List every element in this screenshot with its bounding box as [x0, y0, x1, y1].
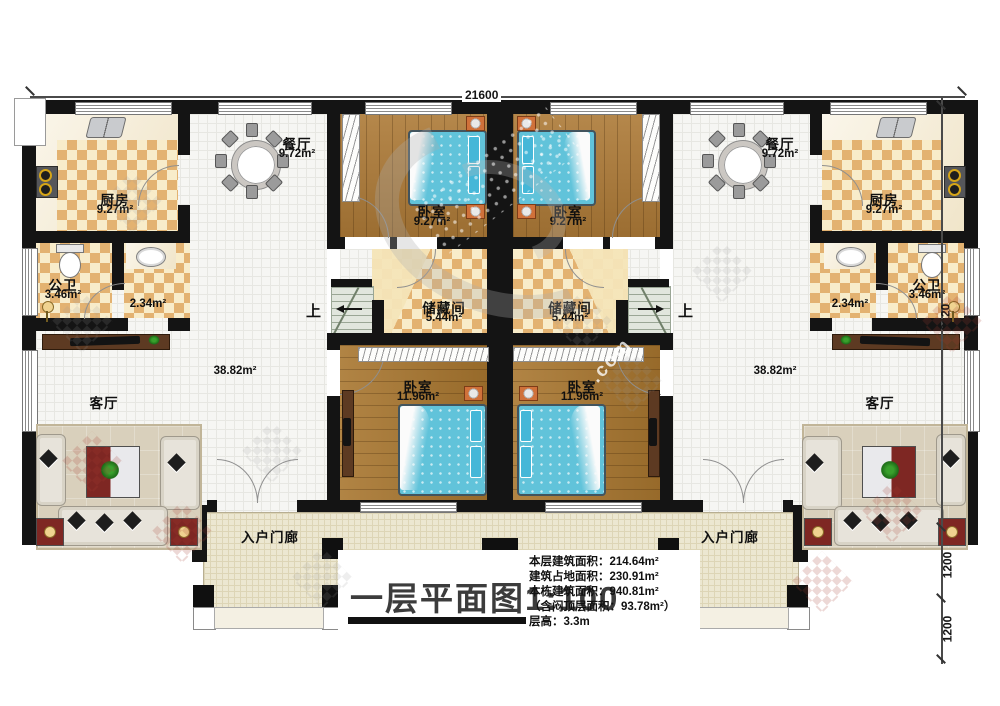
bed-pillow: [520, 410, 532, 442]
dimension-top-value: 21600: [462, 88, 501, 102]
lamp-icon: [42, 301, 54, 313]
stairs-up-label: 上: [678, 300, 693, 321]
dimension-line-right: [941, 98, 943, 664]
entry-steps: [214, 607, 324, 629]
desk-monitor: [649, 418, 657, 446]
plant-icon: [880, 460, 900, 480]
window: [360, 502, 457, 513]
dining-chair: [733, 123, 745, 137]
stairs-up-arrow-icon: [656, 305, 664, 313]
room-area-bedroom-bottom-left: 11.96m²: [386, 391, 450, 403]
wall-segment: [22, 231, 190, 243]
window: [75, 102, 172, 115]
stairs-up-arrow-line: [344, 308, 362, 310]
nightstand: [519, 386, 538, 401]
bed-sheet: [400, 406, 432, 490]
nightstand: [517, 204, 536, 219]
bed-sheet: [410, 132, 438, 200]
wall-segment: [297, 500, 340, 512]
wardrobe: [342, 114, 360, 202]
wall-segment: [390, 237, 397, 249]
wall-segment: [437, 237, 487, 249]
basin-icon: [136, 247, 166, 267]
nightstand: [466, 116, 485, 131]
nightstand: [464, 386, 483, 401]
room-label-porch-left: 入户门廊: [230, 526, 310, 546]
wall-segment: [660, 112, 673, 237]
stairs-up-arrow-line: [638, 308, 656, 310]
dining-chair: [246, 123, 258, 137]
window: [365, 102, 452, 115]
side-table-decor: [946, 526, 958, 538]
floor-plan: 上 上 厨房 9.27m² 餐厅 9.72m² 卧室 9.27m² 公卫 3.4…: [0, 0, 1000, 706]
wall-segment: [207, 500, 217, 512]
room-area-storage-right: 5.44m²: [534, 312, 606, 324]
dining-chair: [215, 154, 227, 168]
party-wall: [487, 100, 513, 512]
dimension-tick: [25, 86, 35, 96]
stat-building-total: 本栋建筑面积：940.81m²: [529, 583, 659, 599]
wall-segment: [810, 231, 978, 243]
room-label-living-left: 客厅: [72, 392, 136, 412]
wall-segment: [327, 333, 487, 345]
armchair: [36, 434, 66, 506]
room-area-living-right: 38.82m²: [740, 365, 810, 377]
room-area-hall-left: 2.34m²: [118, 298, 178, 310]
plant-icon: [148, 335, 160, 345]
wall-segment: [22, 318, 128, 331]
room-area-bedroom-top-left: 9.27m²: [400, 216, 464, 228]
wall-segment: [616, 300, 628, 333]
stairs-up-label: 上: [306, 300, 321, 321]
bed-pillow: [470, 410, 482, 442]
side-table-decor: [44, 526, 56, 538]
room-area-bedroom-top-right: 9.27m²: [536, 216, 600, 228]
wall-segment: [660, 396, 673, 500]
bed-pillow: [470, 446, 482, 478]
plant-icon: [100, 460, 120, 480]
wall-segment: [327, 237, 345, 249]
porch-column: [787, 585, 808, 607]
room-area-kitchen-right: 9.27m²: [852, 204, 916, 216]
plant-icon: [840, 335, 852, 345]
basin-icon: [836, 247, 866, 267]
window: [690, 102, 784, 115]
bed-sheet: [568, 406, 600, 490]
wall-segment: [783, 500, 793, 512]
wall-segment: [327, 396, 340, 500]
burner-icon: [948, 183, 961, 196]
porch-column: [193, 585, 214, 607]
room-area-bath-right: 3.46m²: [898, 289, 956, 301]
kitchen-sink-icon: [875, 117, 916, 138]
bed-pillow: [520, 446, 532, 478]
room-label-living-right: 客厅: [848, 392, 912, 412]
desk-monitor: [343, 418, 351, 446]
wall-segment: [372, 300, 384, 333]
room-area-bath-left: 3.46m²: [34, 289, 92, 301]
bed-pillow: [468, 166, 480, 194]
room-area-living-left: 38.82m²: [200, 365, 270, 377]
room-area-kitchen-left: 9.27m²: [83, 204, 147, 216]
dimension-side-main: 9120: [938, 304, 952, 331]
wardrobe: [642, 114, 660, 202]
window: [550, 102, 637, 115]
wall-segment: [178, 205, 190, 231]
stat-floor-area: 本层建筑面积：214.64m²: [529, 553, 659, 569]
wall-segment: [810, 318, 832, 331]
window: [545, 502, 642, 513]
side-table-decor: [812, 526, 824, 538]
wall-segment: [603, 237, 610, 249]
kitchen-sink-icon: [85, 117, 126, 138]
window: [22, 350, 38, 432]
side-table-decor: [178, 526, 190, 538]
wall-segment: [513, 333, 673, 345]
wall-segment: [168, 318, 190, 331]
wall-segment: [331, 279, 372, 287]
window: [964, 248, 980, 316]
dining-chair: [246, 185, 258, 199]
bed-pillow: [522, 166, 534, 194]
room-label-porch-right: 入户门廊: [690, 526, 770, 546]
dimension-bracket: [14, 98, 46, 146]
wall-segment: [513, 237, 563, 249]
room-area-storage-left: 5.44m²: [408, 312, 480, 324]
wall-segment: [327, 112, 340, 237]
armchair: [802, 436, 842, 510]
room-area-bedroom-bottom-right: 11.96m²: [550, 391, 614, 403]
wall-segment: [178, 112, 190, 155]
closet: [358, 347, 489, 362]
stat-footprint: 建筑占地面积：230.91m²: [529, 568, 659, 584]
wall-segment: [810, 205, 822, 231]
armchair: [160, 436, 200, 510]
wall-segment: [628, 279, 669, 287]
bed-pillow: [468, 136, 480, 164]
window: [830, 102, 927, 115]
column-base: [193, 607, 216, 630]
dining-chair: [702, 154, 714, 168]
dining-chair: [733, 185, 745, 199]
window: [218, 102, 312, 115]
lamp-stem: [46, 311, 48, 322]
burner-icon: [39, 169, 52, 182]
bed-pillow: [522, 136, 534, 164]
burner-icon: [39, 183, 52, 196]
dimension-tick: [957, 86, 967, 96]
wall-segment: [872, 318, 978, 331]
nightstand: [466, 204, 485, 219]
title-underline: [348, 617, 526, 624]
stat-attic: （含闷顶层面积：93.78m²）: [529, 598, 675, 614]
dimension-side-porch: 1200: [940, 552, 954, 579]
dimension-side-steps: 1200: [940, 616, 954, 643]
window: [964, 350, 980, 432]
stairs-up-arrow-icon: [336, 305, 344, 313]
bed-sheet: [562, 132, 590, 200]
stat-storey-height: 层高：3.3m: [529, 613, 590, 629]
nightstand: [517, 116, 536, 131]
wall-segment: [660, 500, 703, 512]
room-area-dining-left: 9.72m²: [265, 148, 329, 160]
wall-segment: [655, 237, 673, 249]
wall-segment: [327, 345, 340, 350]
burner-icon: [948, 169, 961, 182]
column-base: [787, 607, 810, 630]
room-area-hall-right: 2.34m²: [820, 298, 880, 310]
room-area-dining-right: 9.72m²: [748, 148, 812, 160]
wall-segment: [660, 345, 673, 350]
